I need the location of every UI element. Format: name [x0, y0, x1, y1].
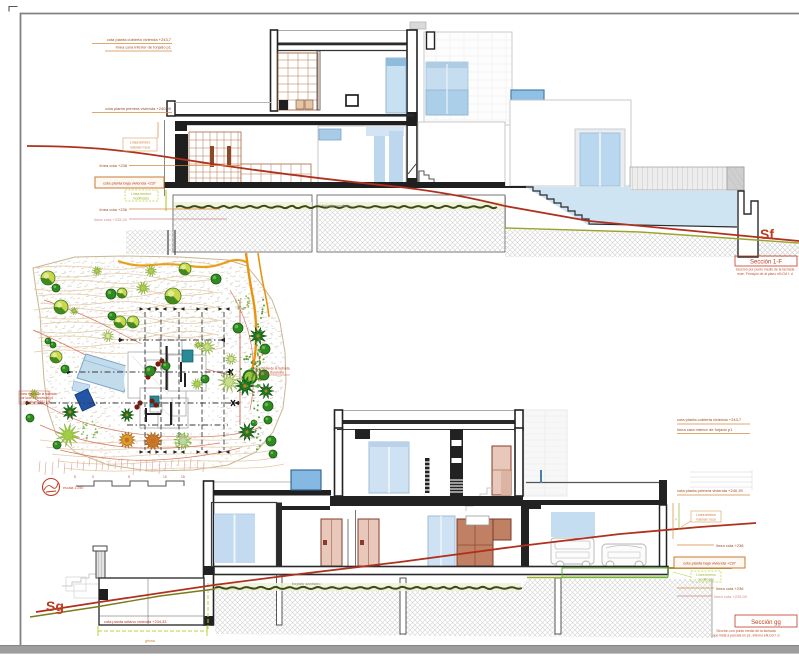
svg-text:5: 5 — [74, 475, 76, 479]
svg-text:línea cota +235,00: línea cota +235,00 — [94, 217, 128, 222]
svg-text:modificado: modificado — [133, 197, 150, 201]
svg-text:cota planta baja vivienda +237: cota planta baja vivienda +237 — [103, 181, 156, 186]
svg-text:línea cota +238: línea cota +238 — [100, 163, 128, 168]
svg-text:línea cota +236: línea cota +236 — [100, 207, 128, 212]
svg-text:línea cota +235,00: línea cota +235,00 — [714, 594, 748, 599]
svg-text:Sección con punto medio de la: Sección con punto medio de la fachada — [716, 629, 775, 633]
svg-text:por todo de la parcela: por todo de la parcela — [253, 371, 284, 375]
svg-text:línea cota +238: línea cota +238 — [716, 543, 744, 548]
svg-text:línea cota +236: línea cota +236 — [716, 586, 744, 591]
svg-text:Sg: Sg — [46, 598, 64, 614]
svg-text:c. colindo m5,351 f. d: c. colindo m5,351 f. d — [20, 400, 51, 404]
svg-text:Sección por punto medio de la: Sección por punto medio de la fachada — [736, 268, 795, 272]
svg-text:cota planta sótano vivienda +2: cota planta sótano vivienda +234,33 — [104, 619, 166, 624]
svg-text:línea cara inferior de forjado: línea cara inferior de forjado p1 — [116, 45, 172, 50]
svg-text:Línea terreno: Línea terreno — [696, 513, 716, 517]
svg-text:que linda a parcela en p1. int: que linda a parcela en p1. interno eN,Gd… — [713, 634, 780, 638]
svg-text:natural / roca: natural / roca — [696, 518, 715, 522]
svg-text:modificado: modificado — [698, 578, 714, 582]
svg-text:Línea terreno: Línea terreno — [130, 141, 150, 145]
svg-text:15: 15 — [181, 475, 185, 479]
svg-text:escala 1:250: escala 1:250 — [63, 486, 83, 490]
svg-text:cota planta cubierta vivienda: cota planta cubierta vivienda +243,7 — [107, 37, 172, 42]
svg-text:Sección 1-F: Sección 1-F — [750, 260, 782, 266]
svg-text:Sf: Sf — [760, 226, 774, 242]
svg-text:forjado sanitario: forjado sanitario — [292, 581, 321, 586]
svg-text:línea cara interior de forjado: línea cara interior de forjado p1 — [677, 427, 733, 432]
svg-text:cota planta cubierta vivienda: cota planta cubierta vivienda +243,7 — [677, 417, 742, 422]
svg-text:cota planta primera vivienda +: cota planta primera vivienda +240,39 — [105, 106, 171, 111]
svg-text:Línea terreno: Línea terreno — [131, 192, 151, 196]
svg-text:5: 5 — [128, 475, 130, 479]
svg-text:este. Principio de al plano eN: este. Principio de al plano eN,Gd f. d — [737, 272, 792, 276]
svg-text:cota planta baja vivienda +237: cota planta baja vivienda +237 — [683, 561, 736, 566]
svg-text:cota planta primera vivienda +: cota planta primera vivienda +240,39 — [677, 488, 743, 493]
svg-text:natural / roca: natural / roca — [130, 146, 150, 150]
svg-text:Línea terreno: Línea terreno — [696, 573, 716, 577]
svg-text:10: 10 — [163, 475, 167, 479]
svg-text:forjado sanitario: forjado sanitario — [322, 203, 351, 208]
svg-text:0: 0 — [92, 475, 94, 479]
svg-text:girona: girona — [145, 639, 155, 643]
svg-text:Sección gg: Sección gg — [751, 620, 781, 626]
